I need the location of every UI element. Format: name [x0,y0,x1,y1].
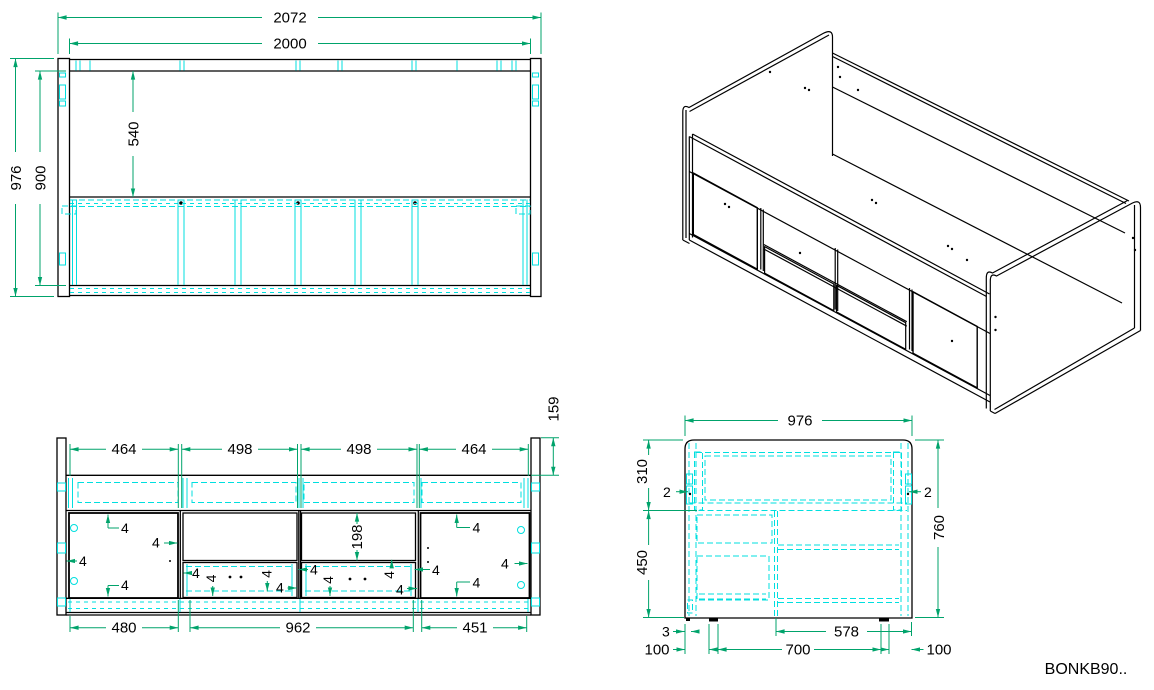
dim-label-overall-length: 2072 [273,10,306,27]
dim-label-bed-depth: 540 [126,121,143,146]
dim-label-bottom-3: 451 [462,620,487,637]
front-view: 464 498 498 464 159 198 [57,396,562,636]
iso-left-drawer [765,247,834,311]
dim-label-section-4: 464 [461,441,486,458]
dim-label-gap: 4 [310,562,318,578]
dim-label-gap: 4 [203,574,219,582]
side-dimensions: 976 310 450 760 2 2 3 [634,413,952,659]
dim-label-inner-length: 2000 [273,36,306,53]
dim-label-gap: 4 [276,580,284,596]
dim-label-gap: 4 [432,562,440,578]
dim-label-gap: 4 [79,553,87,569]
dim-label-gap: 4 [473,575,481,591]
dim-label-total-height: 760 [931,515,948,540]
dim-label-overall-width: 976 [8,165,25,190]
dim-label-gap: 4 [192,565,200,581]
iso-footboard [986,201,1140,414]
dim-label-upper-height: 310 [634,459,651,484]
dim-label-gap: 4 [473,520,481,536]
dim-label-edge-gap: 2 [663,484,671,500]
dim-label-bottom-1: 480 [111,620,136,637]
dim-label-inset-right: 100 [926,642,951,659]
dim-label-gap: 4 [320,576,336,584]
plan-dimensions: 2072 2000 976 900 540 [8,10,541,297]
dim-label-top-rail: 159 [545,396,562,421]
dim-label-gap: 4 [396,582,404,598]
technical-drawing: 2072 2000 976 900 540 [0,0,1154,690]
iso-right-door [913,292,977,388]
dim-label-edge-gap: 2 [924,484,932,500]
side-hidden-details [687,443,912,616]
drawing-canvas: 2072 2000 976 900 540 [0,0,1154,690]
dim-label-foot-span: 700 [785,642,810,659]
dim-label-section-2: 498 [227,441,252,458]
dim-label-gap: 4 [381,571,397,579]
plan-view: 2072 2000 976 900 540 [8,10,541,297]
dim-label-gap: 4 [152,535,160,551]
dim-label-section-3: 498 [346,441,371,458]
front-structure [57,438,540,615]
iso-right-drawer [837,285,906,349]
front-dimensions: 464 498 498 464 159 198 [67,396,563,636]
isometric-view [683,32,1141,414]
dim-label-gap: 4 [121,520,129,536]
plan-hidden-details [60,61,539,293]
iso-front-side [689,134,990,402]
dim-label-inset-left: 100 [644,642,669,659]
dim-label-gap: 4 [121,577,129,593]
dim-label-opening-height: 198 [349,524,366,549]
dim-label-gap: 4 [259,570,275,578]
dim-label-lower-height: 450 [634,550,651,575]
iso-left-door [693,173,757,269]
side-view: 976 310 450 760 2 2 3 [634,413,952,659]
dim-label-compartment: 578 [834,624,859,641]
iso-back-rail [833,53,1130,303]
dim-label-bottom-2: 962 [285,620,310,637]
front-left-opening [183,513,297,561]
dim-label-side-width: 976 [787,413,812,430]
dim-label-gap: 4 [501,556,509,572]
dim-label-inner-width: 900 [33,165,50,190]
plan-structure [58,59,541,297]
dim-label-foot-offset: 3 [662,624,670,640]
dim-label-section-1: 464 [111,441,136,458]
drawing-code: BONKB90.. [1045,661,1128,678]
